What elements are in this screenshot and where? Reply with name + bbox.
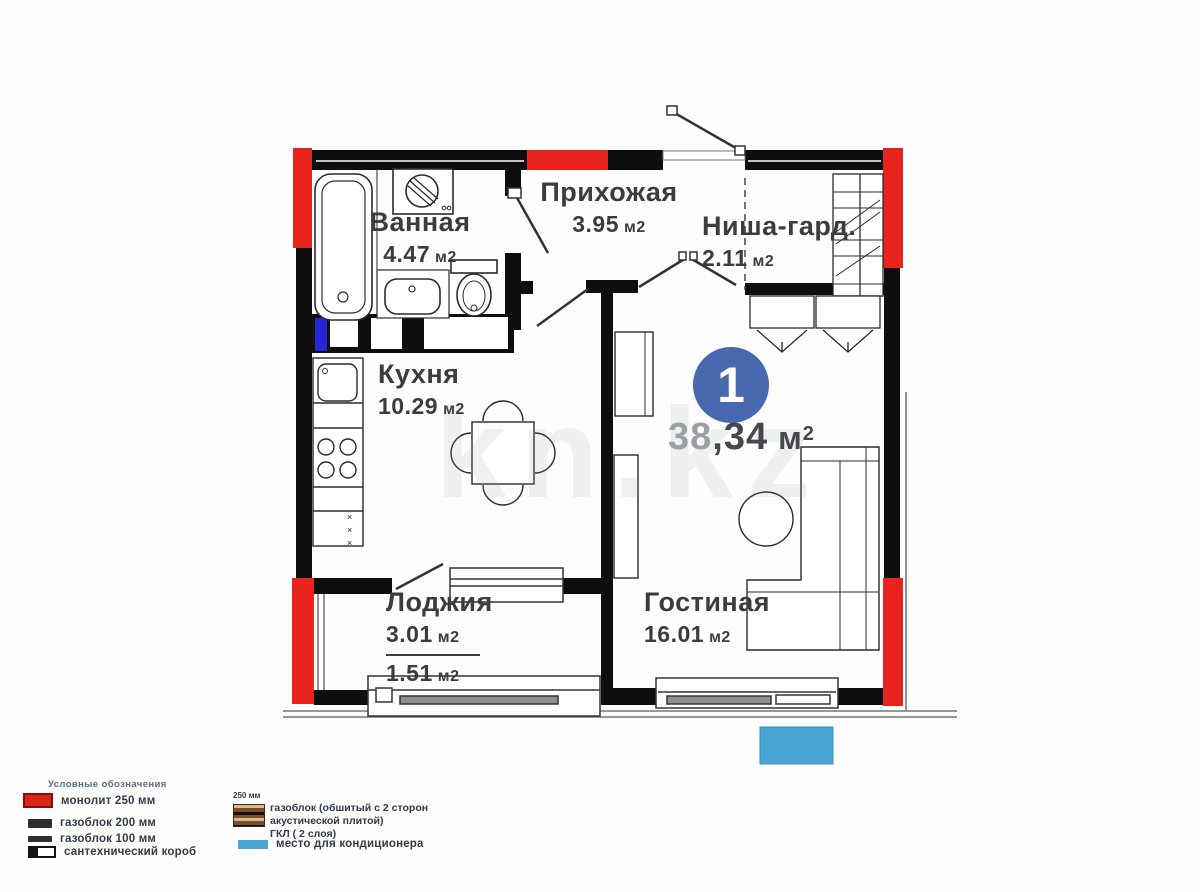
double-door-tip-right [690,252,697,260]
loggia-glazing-post [376,688,392,702]
wall-top-mid [606,150,663,170]
living-name: Гостиная [644,588,814,616]
unit-number-badge: 1 [693,347,769,423]
loggia-area-reduced: 1.51м2 [386,660,516,687]
sanitary-swatch [28,846,56,858]
niche-area: 2.11м2 [702,245,872,272]
ac-swatch [238,840,268,849]
wall-right [884,266,900,578]
hallway-name: Прихожая [536,178,682,206]
bathroom-name: Ванная [348,208,492,236]
red-left-top [293,148,312,248]
wall-kitchen-bottom-right [563,578,601,594]
floor-plan-canvas: kn.kz Ванная 4.47м2 Прихожая 3.95м2 Ниша… [0,0,1200,892]
red-right-top [883,148,903,268]
wall-top-left [312,150,528,170]
wall-living-bottom-left [613,688,658,705]
entrance-door-leaf [673,112,741,151]
toilet-drain [471,305,477,311]
loggia-name: Лоджия [386,588,516,616]
legend-row-sanitary: сантехнический короб [28,846,196,858]
room-label-loggia: Лоджия 3.01м2 1.51м2 [386,588,516,687]
room-label-niche: Ниша-гард. 2.11м2 [702,212,872,272]
kitchen-name: Кухня [378,360,538,388]
sink-faucet [409,286,415,292]
legend: Условные обозначения монолит 250 мм газо… [18,774,498,886]
acoustic-swatch [233,804,265,827]
acoustic-label: газоблок (обшитый с 2 сторон акустическо… [270,802,428,840]
legend-row-ac: место для кондиционера [238,838,424,850]
sanitary-blue-marker [315,318,327,351]
sink-basin-icon [385,279,440,314]
red-right-bottom [883,578,903,706]
loggia-area-divider [386,654,480,656]
living-window-vent [776,695,830,704]
stove-burner-3 [318,462,334,478]
double-door-left-leaf [639,258,686,287]
room-label-living: Гостиная 16.01м2 [644,588,814,648]
cabinet-marks: × × × [347,511,352,550]
gasblock100-swatch [28,836,52,842]
hanger-right [816,296,880,328]
stove-burner-4 [340,462,356,478]
balcony-door-leaf [396,564,443,589]
loggia-glazing-bar [400,696,558,704]
kitchen-sink-tap [323,369,328,374]
living-window-bar [667,696,771,704]
niche-name: Ниша-гард. [702,212,872,240]
shaft-box-2 [371,318,402,349]
stove-burner-1 [318,439,334,455]
room-label-bathroom: Ванная 4.47м2 [348,208,492,268]
air-conditioner-spot [760,727,833,764]
unit-number: 1 [717,360,745,410]
hanger-left [750,296,814,328]
gasblock200-swatch [28,819,52,828]
hallway-area: 3.95м2 [536,211,682,238]
stove-burner-2 [340,439,356,455]
entrance-door-hinge-top [667,106,677,115]
wall-hall-stub [586,280,638,293]
bathtub-drain [338,292,348,302]
kitchen-area: 10.29м2 [378,393,538,420]
shaft-box-3 [424,317,508,349]
wall-living-bottom-right [838,688,884,705]
loggia-area-full: 3.01м2 [386,621,516,648]
bathroom-area: 4.47м2 [348,241,492,268]
legend-row-gasblock100: газоблок 100 мм [28,833,156,845]
entrance-threshold [663,151,745,160]
entrance-door-hinge-bottom [735,146,745,155]
wall-left [296,246,312,580]
room-label-kitchen: Кухня 10.29м2 [378,360,538,420]
legend-row-monolith: монолит 250 мм [23,793,155,808]
wall-door-stop [521,281,533,294]
wall-top-right [745,150,885,170]
bathroom-door-hinge [508,188,521,198]
monolith-swatch [23,793,53,808]
red-left-bottom [292,578,314,704]
living-area: 16.01м2 [644,621,814,648]
kitchen-door-leaf [537,289,588,326]
double-door-tip-left [679,252,686,260]
wall-loggia-bottom [314,690,372,705]
legend-row-gasblock200: газоблок 200 мм [28,817,156,829]
shaft-box-1 [330,320,358,347]
legend-title: Условные обозначения [48,779,167,790]
red-top-segment [527,150,608,170]
room-label-hallway: Прихожая 3.95м2 [536,178,682,238]
total-area: 38,34м2 [668,416,815,459]
acoustic-size-label: 250 мм [233,791,260,800]
